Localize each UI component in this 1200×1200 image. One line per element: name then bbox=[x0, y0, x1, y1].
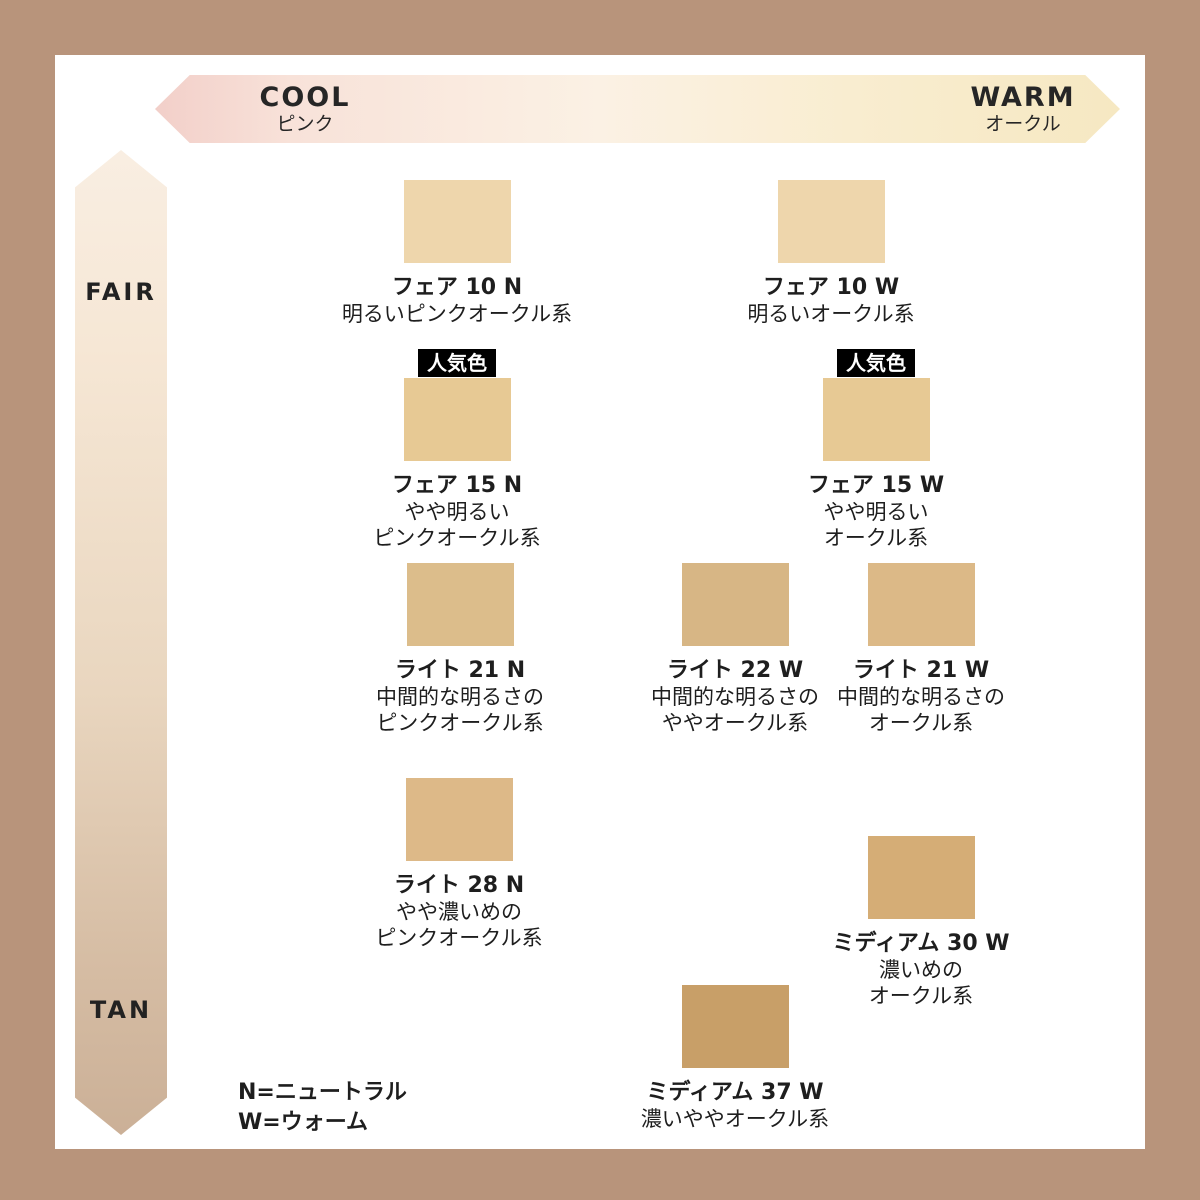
shade-swatch bbox=[682, 985, 789, 1068]
shade-desc-line: 濃いめの bbox=[879, 957, 963, 983]
shade-name: フェア 15 N bbox=[392, 472, 522, 499]
shade-swatch bbox=[407, 563, 514, 646]
shade-desc-line: やや明るい bbox=[405, 499, 510, 525]
shade-name: ライト 21 N bbox=[395, 657, 525, 684]
shade-desc-line: 中間的な明るさの bbox=[376, 684, 544, 710]
shade-swatch bbox=[406, 778, 513, 861]
shade-desc-line: 濃いややオークル系 bbox=[641, 1106, 829, 1132]
warm-axis-label: WARM bbox=[928, 82, 1118, 113]
shade-desc-line: ピンクオークル系 bbox=[375, 925, 542, 951]
fair-axis-label: FAIR bbox=[75, 278, 167, 306]
shade-name: ミディアム 37 W bbox=[646, 1079, 823, 1106]
cool-axis-label: COOL bbox=[210, 82, 400, 113]
shade-chart-canvas: COOL ピンク WARM オークル FAIR TAN フェア 10 N 明るい… bbox=[0, 0, 1200, 1200]
shade-swatch bbox=[868, 836, 975, 919]
fair-tan-axis-arrow: FAIR TAN bbox=[75, 150, 167, 1135]
shade-desc-line: やや濃いめの bbox=[396, 899, 522, 925]
cool-axis-block: COOL ピンク bbox=[210, 82, 400, 136]
shade-swatch bbox=[823, 378, 930, 461]
shade-desc-line: 明るいオークル系 bbox=[747, 301, 914, 327]
tan-axis-label: TAN bbox=[75, 996, 167, 1024]
shade-desc-line: 明るいピンクオークル系 bbox=[342, 301, 572, 327]
shade-desc-line: オークル系 bbox=[824, 525, 928, 551]
shade-desc-line: ピンクオークル系 bbox=[376, 710, 543, 736]
shade-desc-line: オークル系 bbox=[869, 710, 973, 736]
shade-swatch bbox=[778, 180, 885, 263]
warm-axis-block: WARM オークル bbox=[928, 82, 1118, 136]
shade-swatch bbox=[868, 563, 975, 646]
shade-name: ライト 21 W bbox=[853, 657, 989, 684]
shade-card-light-21n: ライト 21 N 中間的な明るさの ピンクオークル系 bbox=[310, 563, 610, 736]
shade-card-light-28n: ライト 28 N やや濃いめの ピンクオークル系 bbox=[309, 778, 609, 951]
shade-name: フェア 10 N bbox=[392, 274, 522, 301]
cool-warm-axis-arrow: COOL ピンク WARM オークル bbox=[155, 75, 1120, 143]
popular-badge: 人気色 bbox=[837, 349, 915, 377]
shade-card-fair-10w: フェア 10 W 明るいオークル系 bbox=[681, 180, 981, 327]
shade-desc-line: やや明るい bbox=[824, 499, 929, 525]
shade-desc-line: ピンクオークル系 bbox=[373, 525, 540, 551]
shade-card-medium-30w: ミディアム 30 W 濃いめの オークル系 bbox=[771, 836, 1071, 1009]
shade-card-fair-15w: 人気色 フェア 15 W やや明るい オークル系 bbox=[726, 349, 1026, 551]
shade-name: フェア 10 W bbox=[763, 274, 899, 301]
shade-name: フェア 15 W bbox=[808, 472, 944, 499]
warm-axis-sublabel: オークル bbox=[928, 113, 1118, 136]
popular-badge: 人気色 bbox=[418, 349, 496, 377]
shade-desc-line: 中間的な明るさの bbox=[837, 684, 1005, 710]
shade-swatch bbox=[404, 180, 511, 263]
shade-card-fair-10n: フェア 10 N 明るいピンクオークル系 bbox=[307, 180, 607, 327]
shade-name: ミディアム 30 W bbox=[832, 930, 1009, 957]
legend-line-warm: W=ウォーム bbox=[238, 1108, 407, 1138]
cool-axis-sublabel: ピンク bbox=[210, 113, 400, 136]
shade-card-light-21w: ライト 21 W 中間的な明るさの オークル系 bbox=[771, 563, 1071, 736]
legend-line-neutral: N=ニュートラル bbox=[238, 1078, 407, 1108]
shade-card-medium-37w: ミディアム 37 W 濃いややオークル系 bbox=[585, 985, 885, 1132]
shade-name: ライト 28 N bbox=[394, 872, 524, 899]
legend: N=ニュートラル W=ウォーム bbox=[238, 1078, 407, 1138]
shade-card-fair-15n: 人気色 フェア 15 N やや明るい ピンクオークル系 bbox=[307, 349, 607, 551]
shade-swatch bbox=[404, 378, 511, 461]
